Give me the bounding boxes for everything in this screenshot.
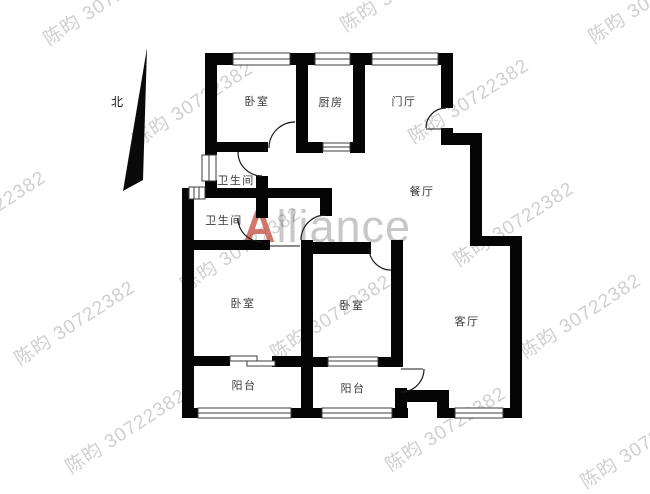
wall bbox=[301, 242, 371, 254]
wall bbox=[205, 53, 217, 155]
wall bbox=[437, 390, 449, 418]
room-label-balcony-right: 阳台 bbox=[341, 381, 366, 395]
wall bbox=[470, 133, 482, 238]
door-arc-bathroom-upper bbox=[238, 152, 262, 176]
window bbox=[198, 408, 291, 418]
wall bbox=[256, 198, 268, 218]
wall bbox=[441, 53, 453, 108]
wall bbox=[320, 188, 332, 216]
wall bbox=[301, 240, 313, 418]
window bbox=[323, 143, 350, 151]
wall bbox=[391, 240, 403, 367]
window bbox=[315, 53, 350, 65]
room-label-kitchen: 厨房 bbox=[319, 96, 344, 109]
room-label-dining: 餐厅 bbox=[410, 184, 435, 198]
window bbox=[322, 408, 392, 418]
window bbox=[189, 187, 205, 199]
north-arrow bbox=[123, 48, 147, 191]
window bbox=[455, 408, 503, 418]
wall bbox=[296, 53, 308, 152]
room-label-foyer: 门厅 bbox=[392, 94, 417, 108]
wall bbox=[256, 176, 268, 188]
door-arc-corridor bbox=[301, 215, 326, 240]
room-label-living: 客厅 bbox=[455, 314, 480, 328]
window bbox=[233, 53, 290, 65]
door-arc-bedroom-top bbox=[269, 122, 295, 148]
room-label-bedroom-middle: 卧室 bbox=[340, 298, 365, 312]
room-label-bathroom-lower: 卫生间 bbox=[205, 213, 243, 227]
room-label-bathroom-upper: 卫生间 bbox=[217, 173, 255, 187]
wall bbox=[378, 357, 403, 367]
wall bbox=[296, 142, 323, 153]
wall bbox=[182, 188, 194, 418]
room-label-bedroom-left: 卧室 bbox=[231, 296, 256, 310]
door-arc-balcony-right bbox=[401, 369, 424, 392]
floor-plan-drawing: 北 卧室 厨房 门厅 餐厅 卫生间 卫生间 卧室 卧室 客厅 阳台 阳台 bbox=[0, 0, 650, 474]
window bbox=[372, 53, 438, 65]
floor-plan-image: 陈昀 30722382 陈昀 30722382 陈昀 30722382 陈昀 3… bbox=[0, 0, 650, 474]
wall bbox=[313, 408, 322, 418]
wall bbox=[182, 356, 230, 366]
door-arc-entry bbox=[426, 108, 446, 128]
door-arc-bedroom-middle bbox=[369, 248, 391, 270]
wall bbox=[350, 142, 365, 153]
wall bbox=[301, 357, 328, 367]
room-label-balcony-left: 阳台 bbox=[232, 378, 257, 392]
wall bbox=[182, 408, 198, 418]
north-label: 北 bbox=[111, 95, 123, 109]
wall bbox=[510, 236, 522, 418]
windows bbox=[189, 53, 503, 418]
window bbox=[202, 155, 216, 181]
room-label-bedroom-top: 卧室 bbox=[245, 94, 270, 108]
wall bbox=[272, 356, 301, 367]
window bbox=[328, 357, 378, 366]
sliding-door bbox=[230, 356, 275, 366]
wall bbox=[256, 142, 268, 152]
wall bbox=[353, 53, 365, 152]
